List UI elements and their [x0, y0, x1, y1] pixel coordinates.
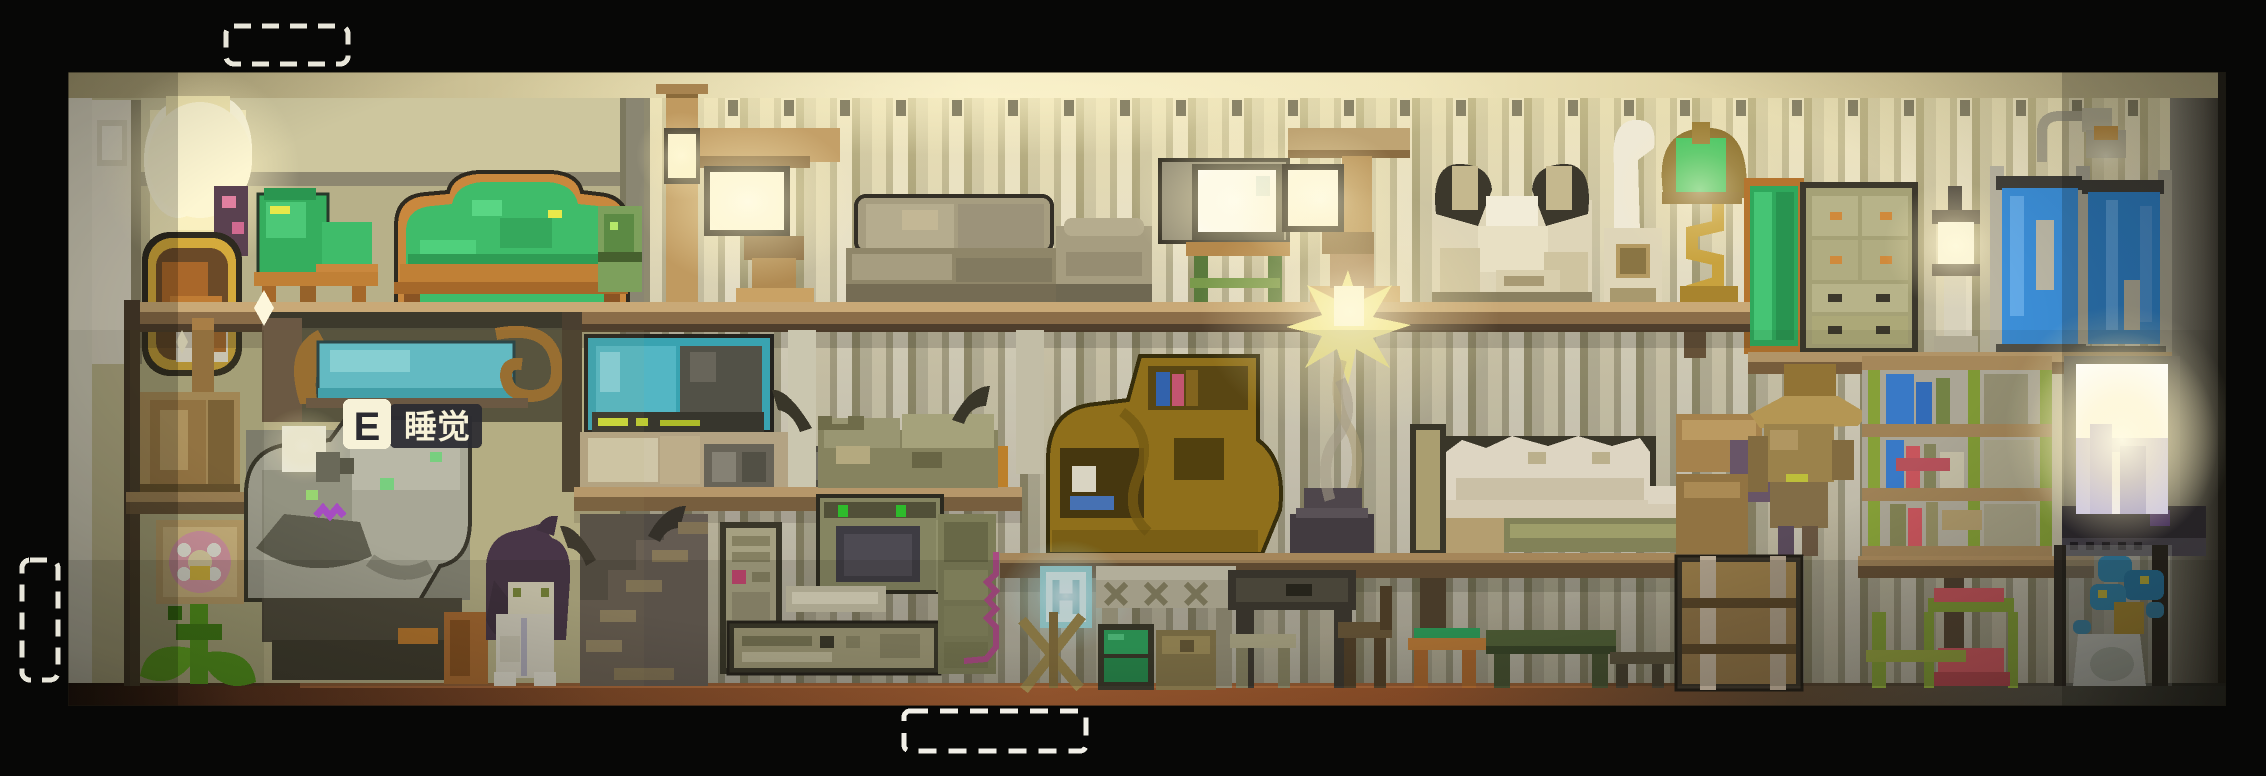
svg-text:睡觉: 睡觉: [404, 408, 470, 445]
svg-text:E: E: [354, 405, 381, 449]
